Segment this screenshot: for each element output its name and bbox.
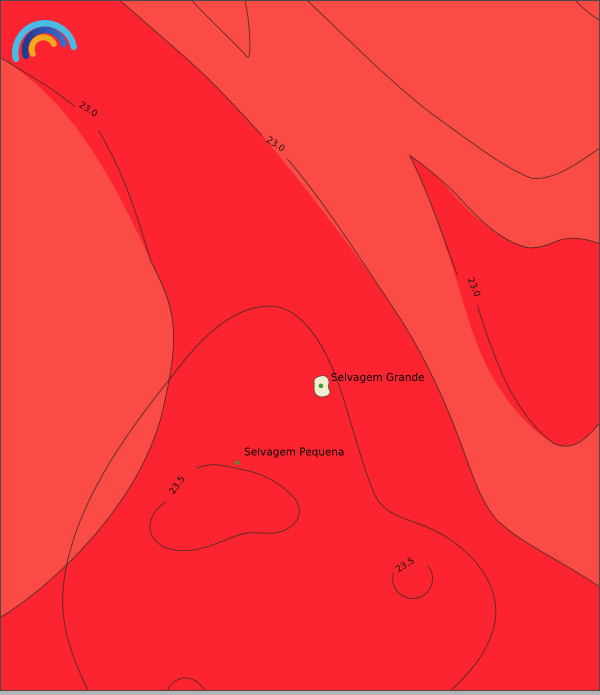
contour-map-canvas[interactable]: 23.0 23.0 23.0 23.5 23.5 Selvagem Grande…: [1, 1, 599, 690]
selvagem-grande-marker: [319, 384, 324, 389]
selvagem-pequena-marker: [235, 461, 239, 465]
selvagem-pequena-label: Selvagem Pequena: [244, 447, 344, 459]
map-window: 23.0 23.0 23.0 23.5 23.5 Selvagem Grande…: [0, 0, 600, 695]
bottom-edge-strip: [0, 691, 600, 695]
map-frame: 23.0 23.0 23.0 23.5 23.5 Selvagem Grande…: [0, 0, 600, 691]
selvagem-grande-label: Selvagem Grande: [331, 372, 425, 384]
